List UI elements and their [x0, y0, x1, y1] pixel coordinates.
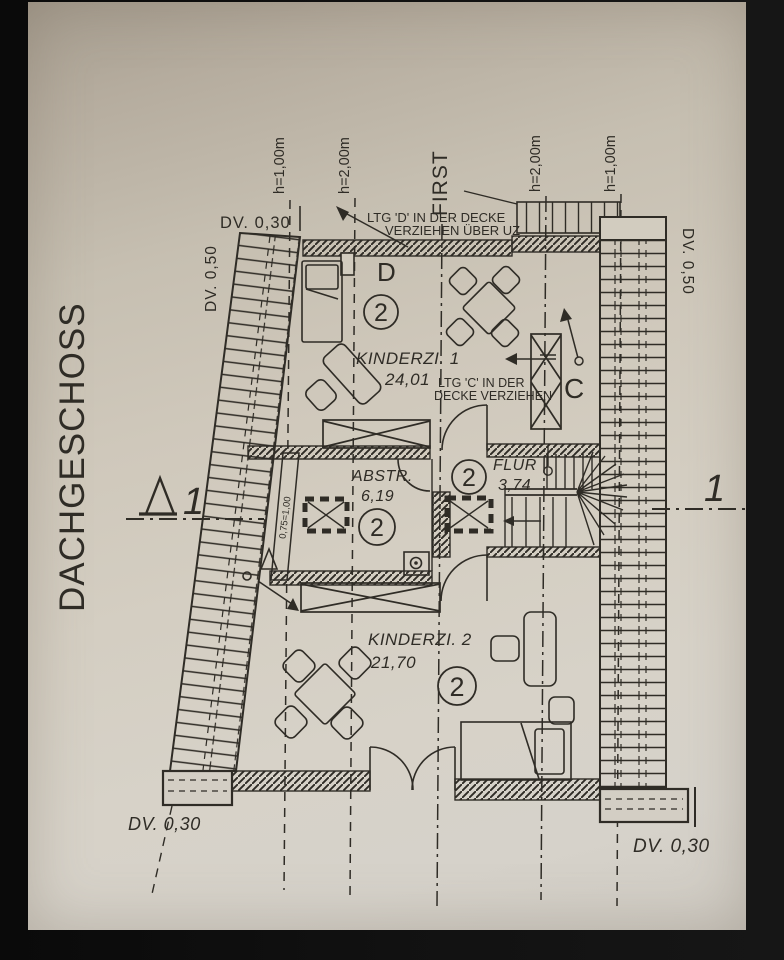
- h-label-4: h=1,00m: [603, 135, 619, 192]
- room-flur-area: 3,74: [498, 477, 531, 494]
- pillow-k1: [306, 265, 338, 289]
- room-abstr-name: ABSTR.: [351, 468, 413, 485]
- chair-k1: [303, 377, 338, 412]
- room-k2-area: 21,70: [370, 653, 416, 672]
- bed-k1: [302, 261, 342, 342]
- floor-title: DACHGESCHOSS: [53, 302, 92, 612]
- ltg-c-note-line2: DECKE VERZIEHEN: [434, 389, 552, 403]
- h-label-3: h=2,00m: [528, 135, 544, 192]
- wall-end-block-bottom-left: [163, 771, 232, 805]
- right-wall-cap: [600, 217, 666, 240]
- badge-abstr: 2: [370, 514, 384, 542]
- nightstand-k2: [549, 697, 574, 724]
- chimney-shaft: [531, 334, 561, 429]
- pillow-k2: [535, 729, 564, 774]
- ltg-c-note-line1: LTG 'C' IN DER: [438, 376, 525, 390]
- ceiling-beam-lower: [301, 583, 440, 612]
- bed-k2: [461, 722, 571, 780]
- section-number-right: 1: [704, 468, 726, 510]
- door-letter-d: D: [377, 257, 396, 287]
- chair-k2: [491, 636, 519, 661]
- room-k1-area: 24,01: [384, 370, 430, 389]
- roof-window-abstr: [305, 499, 347, 531]
- h-label-1: h=1,00m: [272, 137, 288, 194]
- ceiling-beam-upper: [323, 420, 430, 448]
- dim-bottom-left: DV. 0,30: [128, 814, 201, 834]
- section-number-left: 1: [183, 481, 205, 523]
- room-k2-name: KINDERZI. 2: [368, 630, 472, 649]
- doors: [341, 253, 487, 790]
- door-letter-c: C: [564, 373, 584, 404]
- roof-window-flur: [447, 498, 491, 531]
- badge-flur: 2: [462, 464, 476, 492]
- dim-bottom-right: DV. 0,30: [633, 836, 710, 857]
- right-outer-wall: [600, 220, 666, 788]
- dim-left: DV. 0,50: [203, 245, 220, 312]
- wall-end-block-bottom-right: [600, 787, 695, 827]
- h-label-2: h=2,00m: [337, 137, 353, 194]
- door-d-leaf: [341, 253, 354, 275]
- dim-top-left: DV. 0,30: [220, 214, 291, 232]
- room-k1-name: KINDERZI. 1: [356, 349, 460, 368]
- room-flur-name: FLUR: [493, 457, 537, 474]
- badge-k1: 2: [374, 299, 388, 327]
- floorplan-drawing: h=1,00m h=2,00m FIRST h=2,00m h=1,00m 0,…: [0, 0, 784, 960]
- room-abstr-area: 6,19: [361, 488, 394, 505]
- ltg-d-note-line2: VERZIEHEN ÜBER UZ: [385, 223, 520, 238]
- badge-k2: 2: [449, 672, 464, 702]
- dim-right: DV. 0,50: [679, 228, 696, 295]
- desk-k2: [524, 612, 556, 686]
- first-ridge-label: FIRST: [429, 150, 452, 216]
- scanned-floorplan-photo: h=1,00m h=2,00m FIRST h=2,00m h=1,00m 0,…: [0, 0, 784, 960]
